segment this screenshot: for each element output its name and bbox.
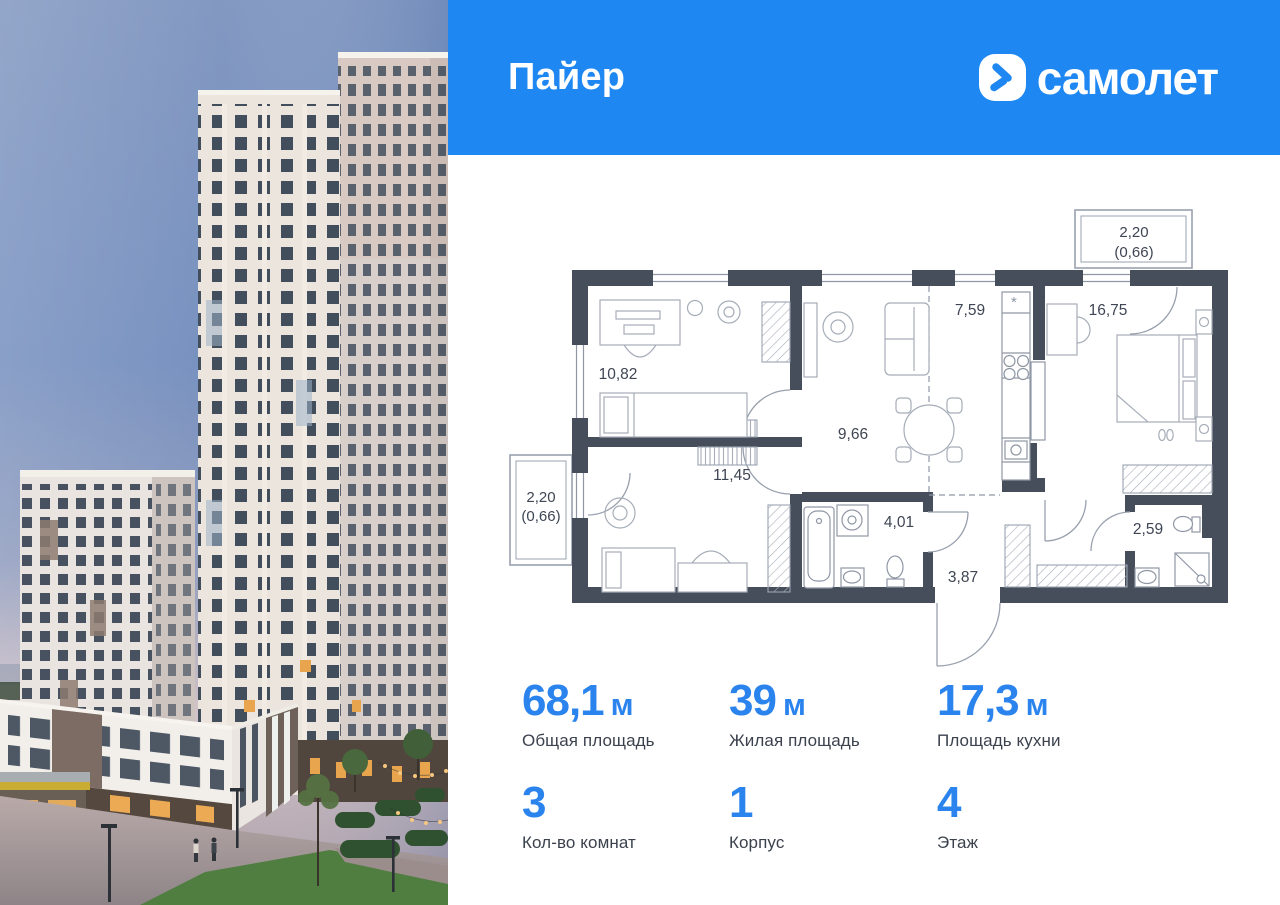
stat-rooms-count: 3 Кол-во комнат — [522, 780, 636, 852]
stat-living-area: 39м Жилая площадь — [729, 678, 860, 750]
dining-table — [904, 405, 954, 455]
stat-label: Общая площадь — [522, 732, 655, 750]
desk — [1047, 304, 1077, 355]
chair — [896, 398, 911, 413]
desk — [600, 300, 680, 345]
header-banner: Пайер самолет — [448, 0, 1280, 155]
room-area-label: 16,75 — [1089, 302, 1128, 319]
floor-plan: * — [448, 155, 1280, 715]
plant — [605, 498, 635, 528]
tv-stand — [804, 303, 817, 377]
room-area-label: 2,59 — [1133, 521, 1163, 538]
stat-total-area: 68,1м Общая площадь — [522, 678, 655, 750]
brand-wordmark: самолет — [1037, 51, 1218, 105]
balcony-dim-label: 2,20 — [526, 489, 555, 506]
stat-label: Площадь кухни — [937, 732, 1061, 750]
stat-label: Кол-во комнат — [522, 834, 636, 852]
stat-value: 3 — [522, 778, 545, 827]
room-area-label: 9,66 — [838, 426, 868, 443]
stat-floor: 4 Этаж — [937, 780, 978, 852]
stat-label: Жилая площадь — [729, 732, 860, 750]
room-area-label: 7,59 — [955, 302, 985, 319]
pillow — [604, 397, 628, 433]
balcony-dim-label: 2,20 — [1119, 224, 1148, 241]
stat-unit: м — [783, 687, 806, 722]
furniture-room-2 — [602, 498, 747, 592]
stat-value: 17,3 — [937, 676, 1019, 725]
stove-burner — [1018, 369, 1029, 380]
fridge — [1031, 362, 1045, 440]
plant — [718, 301, 740, 323]
hood-symbol: * — [1011, 294, 1017, 311]
chair — [624, 345, 656, 357]
toilet — [887, 556, 903, 578]
stove-burner — [1018, 356, 1029, 367]
stove-burner — [1004, 369, 1015, 380]
tower-building — [198, 52, 448, 802]
pillow — [606, 552, 621, 588]
samolet-logo-icon — [979, 54, 1026, 101]
slipper — [1159, 430, 1165, 441]
room-area-label: 3,87 — [948, 569, 978, 586]
room-area-label: 11,45 — [713, 467, 751, 484]
info-panel: Пайер самолет — [448, 0, 1280, 905]
chair — [692, 551, 730, 563]
ball — [688, 301, 703, 316]
stat-label: Этаж — [937, 834, 978, 852]
stat-value: 1 — [729, 778, 752, 827]
stat-value: 4 — [937, 778, 960, 827]
stat-building: 1 Корпус — [729, 780, 784, 852]
room-area-label: 4,01 — [884, 514, 914, 531]
pillow — [1183, 381, 1195, 419]
toilet — [1174, 517, 1193, 532]
stat-kitchen-area: 17,3м Площадь кухни — [937, 678, 1061, 750]
pillow — [1183, 339, 1195, 377]
stat-unit: м — [611, 687, 634, 722]
desk — [678, 563, 747, 592]
brand-logo: самолет — [979, 51, 1218, 105]
stat-value: 39 — [729, 676, 776, 725]
plant — [823, 312, 853, 342]
stat-value: 68,1 — [522, 676, 604, 725]
room-area-label: 10,82 — [599, 366, 638, 383]
balcony-area-label: (0,66) — [1114, 244, 1153, 261]
stove-burner — [1004, 356, 1015, 367]
project-name: Пайер — [508, 56, 625, 99]
toilet-tank — [1192, 517, 1200, 532]
building-photo — [0, 0, 448, 905]
chair — [947, 398, 962, 413]
chair — [947, 447, 962, 462]
chair — [896, 447, 911, 462]
furniture-living — [804, 303, 962, 462]
furniture-bedroom — [1047, 304, 1212, 441]
balcony-area-label: (0,66) — [521, 508, 560, 525]
stat-label: Корпус — [729, 834, 784, 852]
stat-unit: м — [1026, 687, 1049, 722]
chair — [1077, 317, 1090, 343]
listing-card: Пайер самолет — [0, 0, 1280, 905]
slipper — [1167, 430, 1173, 441]
